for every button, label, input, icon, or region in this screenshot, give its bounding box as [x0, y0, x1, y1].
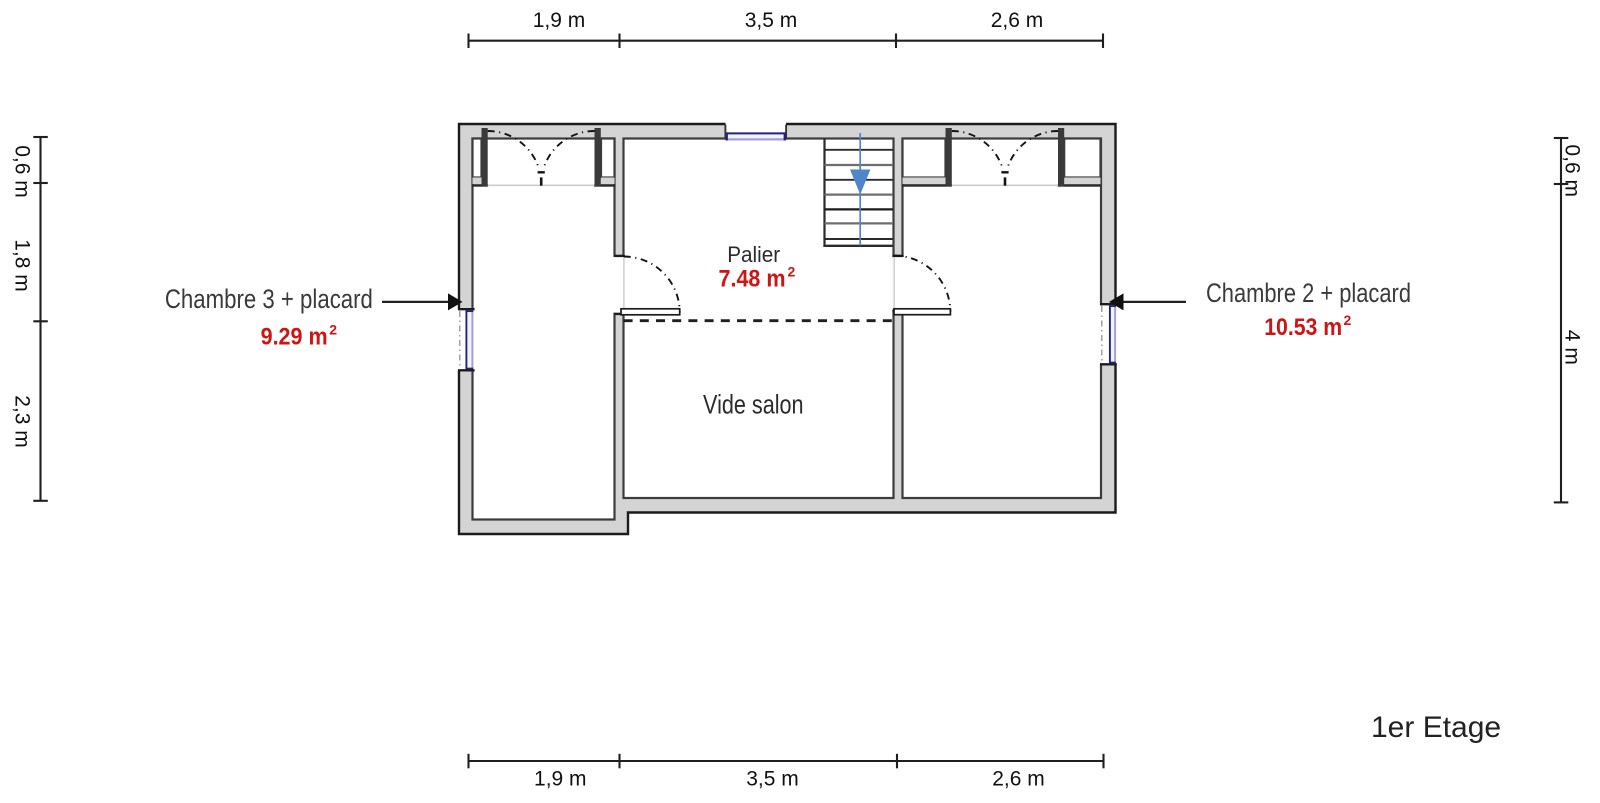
svg-text:3,5 m: 3,5 m [745, 9, 798, 32]
svg-text:2: 2 [329, 322, 337, 338]
svg-text:4 m: 4 m [1561, 330, 1584, 365]
svg-text:2,3 m: 2,3 m [11, 395, 34, 448]
svg-text:1,8 m: 1,8 m [11, 239, 34, 292]
svg-text:0,6 m: 0,6 m [1561, 144, 1584, 197]
svg-text:3,5 m: 3,5 m [746, 767, 799, 790]
svg-text:Vide salon: Vide salon [703, 390, 804, 420]
svg-text:9.29 m: 9.29 m [261, 324, 328, 351]
svg-text:2,6 m: 2,6 m [991, 9, 1044, 32]
svg-text:Chambre 3 + placard: Chambre 3 + placard [165, 284, 373, 314]
svg-text:2,6 m: 2,6 m [992, 767, 1045, 790]
svg-text:1,9 m: 1,9 m [533, 9, 586, 32]
svg-text:2: 2 [1344, 312, 1352, 328]
svg-text:Palier: Palier [727, 242, 780, 267]
svg-text:7.48 m: 7.48 m [719, 266, 786, 293]
svg-text:1,9 m: 1,9 m [534, 767, 587, 790]
svg-text:Chambre 2 + placard: Chambre 2 + placard [1206, 278, 1411, 308]
svg-text:1er Etage: 1er Etage [1371, 711, 1501, 744]
svg-text:10.53 m: 10.53 m [1264, 314, 1342, 341]
svg-text:0,6 m: 0,6 m [11, 145, 34, 198]
svg-text:2: 2 [788, 264, 796, 280]
